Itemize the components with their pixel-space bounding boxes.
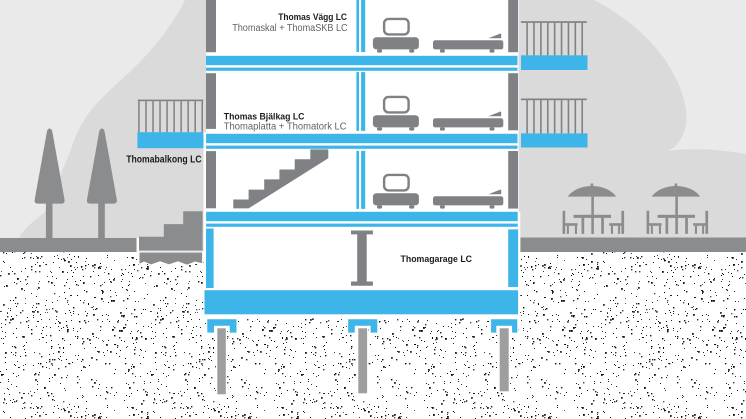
svg-text:Thomagarage LC: Thomagarage LC — [401, 254, 473, 265]
svg-text:Thomabalkong LC: Thomabalkong LC — [126, 154, 201, 165]
svg-text:Thomaplatta + Thomatork LC: Thomaplatta + Thomatork LC — [224, 122, 347, 133]
svg-text:Thomaskal + ThomaSKB LC: Thomaskal + ThomaSKB LC — [232, 23, 347, 34]
svg-text:Thomas Vägg LC: Thomas Vägg LC — [278, 11, 347, 22]
svg-text:Thomas Bjälkag LC: Thomas Bjälkag LC — [224, 111, 305, 122]
